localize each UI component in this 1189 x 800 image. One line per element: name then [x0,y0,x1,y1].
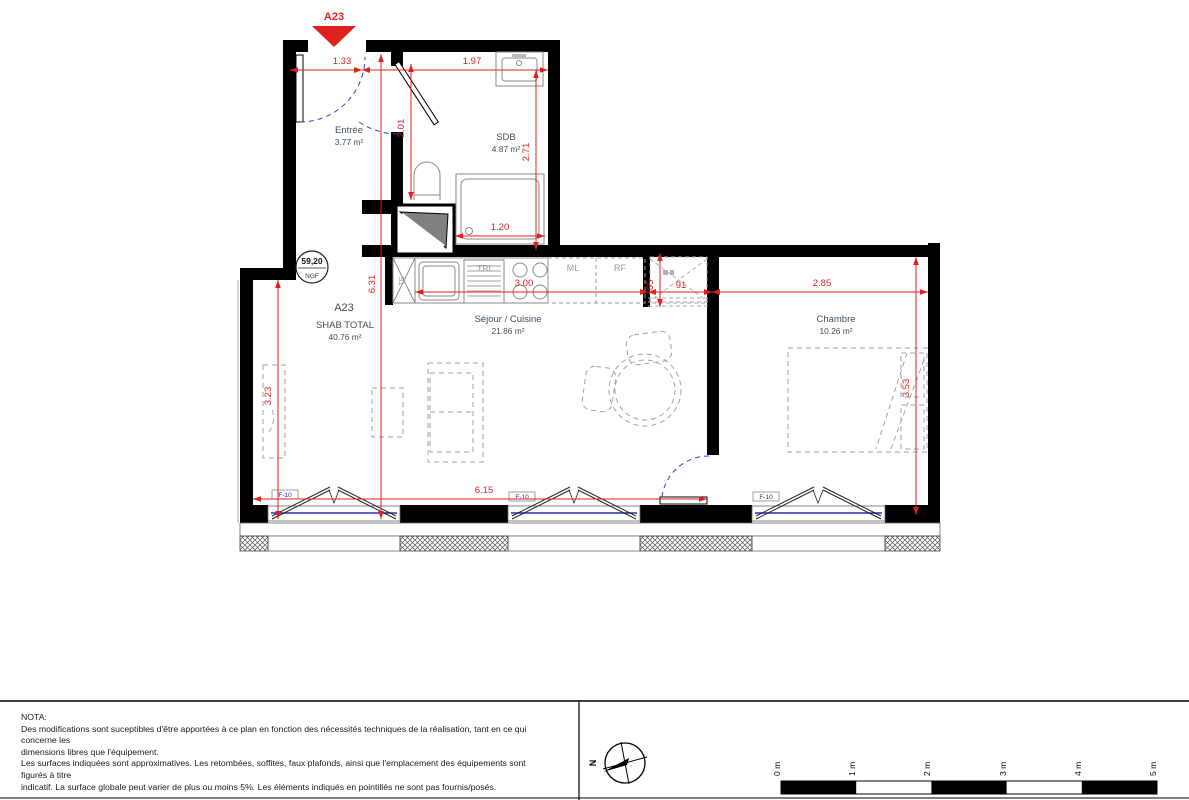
floor-plan-drawing: F-10 F-10 F-10 [0,0,1189,800]
coffee-table [372,388,403,437]
nota-line: Des modifications sont suceptibles d'êtr… [21,724,571,736]
room-name-entree: Entrée [335,125,363,136]
kitchen-rf-label: RF [614,263,626,273]
sideboard [263,365,285,458]
kitchen-sink [419,262,459,300]
sofa [428,363,483,462]
scale-tick-0: 0 m [772,762,782,776]
room-area-sdb: 4.87 m² [492,144,521,154]
nota-title: NOTA: [21,712,571,724]
window-tag-label: F-10 [278,492,292,499]
summary-unit: A23 [334,302,354,314]
window-tag-label: F-10 [759,494,773,501]
nota-line: figurés à titre [21,770,571,782]
dim-placard-depth: 65 [645,280,656,291]
chambre-door [660,456,709,504]
room-name-chambre: Chambre [816,314,855,325]
level-datum: NGF [305,273,319,280]
dim-sejour-left-depth: 3.23 [263,387,274,406]
dim-sdb-inner-width: 1.20 [491,222,510,233]
scale-tick-2: 2 m [922,762,932,776]
room-name-sdb: SDB [496,132,516,143]
furniture [263,330,927,462]
hatch-block [640,536,752,551]
summary-area: 40.76 m² [328,332,361,342]
kitchen-te-label: TE [397,276,406,286]
scale-bar: 0 m 1 m 2 m 3 m 4 m 5 m [772,762,1158,794]
unit-marker-triangle [312,26,356,47]
unit-marker-label: A23 [324,11,344,23]
scale-tick-4: 4 m [1073,762,1083,776]
summary-title: SHAB TOTAL [316,320,374,331]
room-area-chambre: 10.26 m² [819,326,852,336]
room-area-entree: 3.77 m² [335,137,364,147]
dim-sdb-width: 1.97 [463,56,482,67]
dim-entree-width: 1.33 [333,56,352,67]
scale-tick-3: 3 m [998,762,1008,776]
level-value: 59,20 [301,256,323,266]
dim-sdb-depth: 2.71 [521,143,532,162]
kitchen-ml-label: ML [567,263,580,273]
room-area-sejour: 21.86 m² [491,326,524,336]
floor-plan-sheet: F-10 F-10 F-10 [0,0,1189,800]
dim-chambre-width: 2.85 [813,278,832,289]
north-compass: N [588,742,647,784]
north-needle [603,758,629,772]
dining-table [581,330,681,426]
scale-tick-5: 5 m [1148,762,1158,776]
north-label: N [588,760,598,767]
hatch-block [240,536,268,551]
nota-block: NOTA: Des modifications sont suceptibles… [21,712,571,793]
nota-line: concerne les [21,735,571,747]
dim-sejour-width: 6.15 [475,485,494,496]
kitchen-tri-label: TRI [477,263,491,273]
dimensions: 1.33 1.97 2.01 2.71 1.20 6.31 3.23 3.00 … [253,54,928,519]
level-marker: 59,20 NGF [296,251,328,283]
scale-tick-1: 1 m [847,762,857,776]
room-name-sejour: Séjour / Cuisine [474,314,541,325]
nota-line: dimensions libres que l'équipement. [21,747,571,759]
hatch-block [885,536,940,551]
dim-cuisine-width: 3.00 [515,278,534,289]
dim-sejour-depth: 6.31 [367,275,378,294]
chair [581,365,617,413]
shower [456,174,544,244]
toilet [414,162,440,200]
entry-door [296,55,365,122]
bed [788,348,927,452]
hatch-block [400,536,508,551]
walls [240,40,940,523]
dim-placard-width: 91 [676,280,687,291]
nota-line: Les surfaces indiquées sont approximativ… [21,758,571,770]
technical-shaft [396,205,454,254]
nota-line: indicatif. La surface globale peut varie… [21,782,571,794]
window-tag-label: F-10 [515,494,529,501]
unit-marker: A23 [312,11,356,47]
dim-entree-depth: 2.01 [396,119,407,138]
dim-chambre-depth: 3.53 [901,379,912,398]
